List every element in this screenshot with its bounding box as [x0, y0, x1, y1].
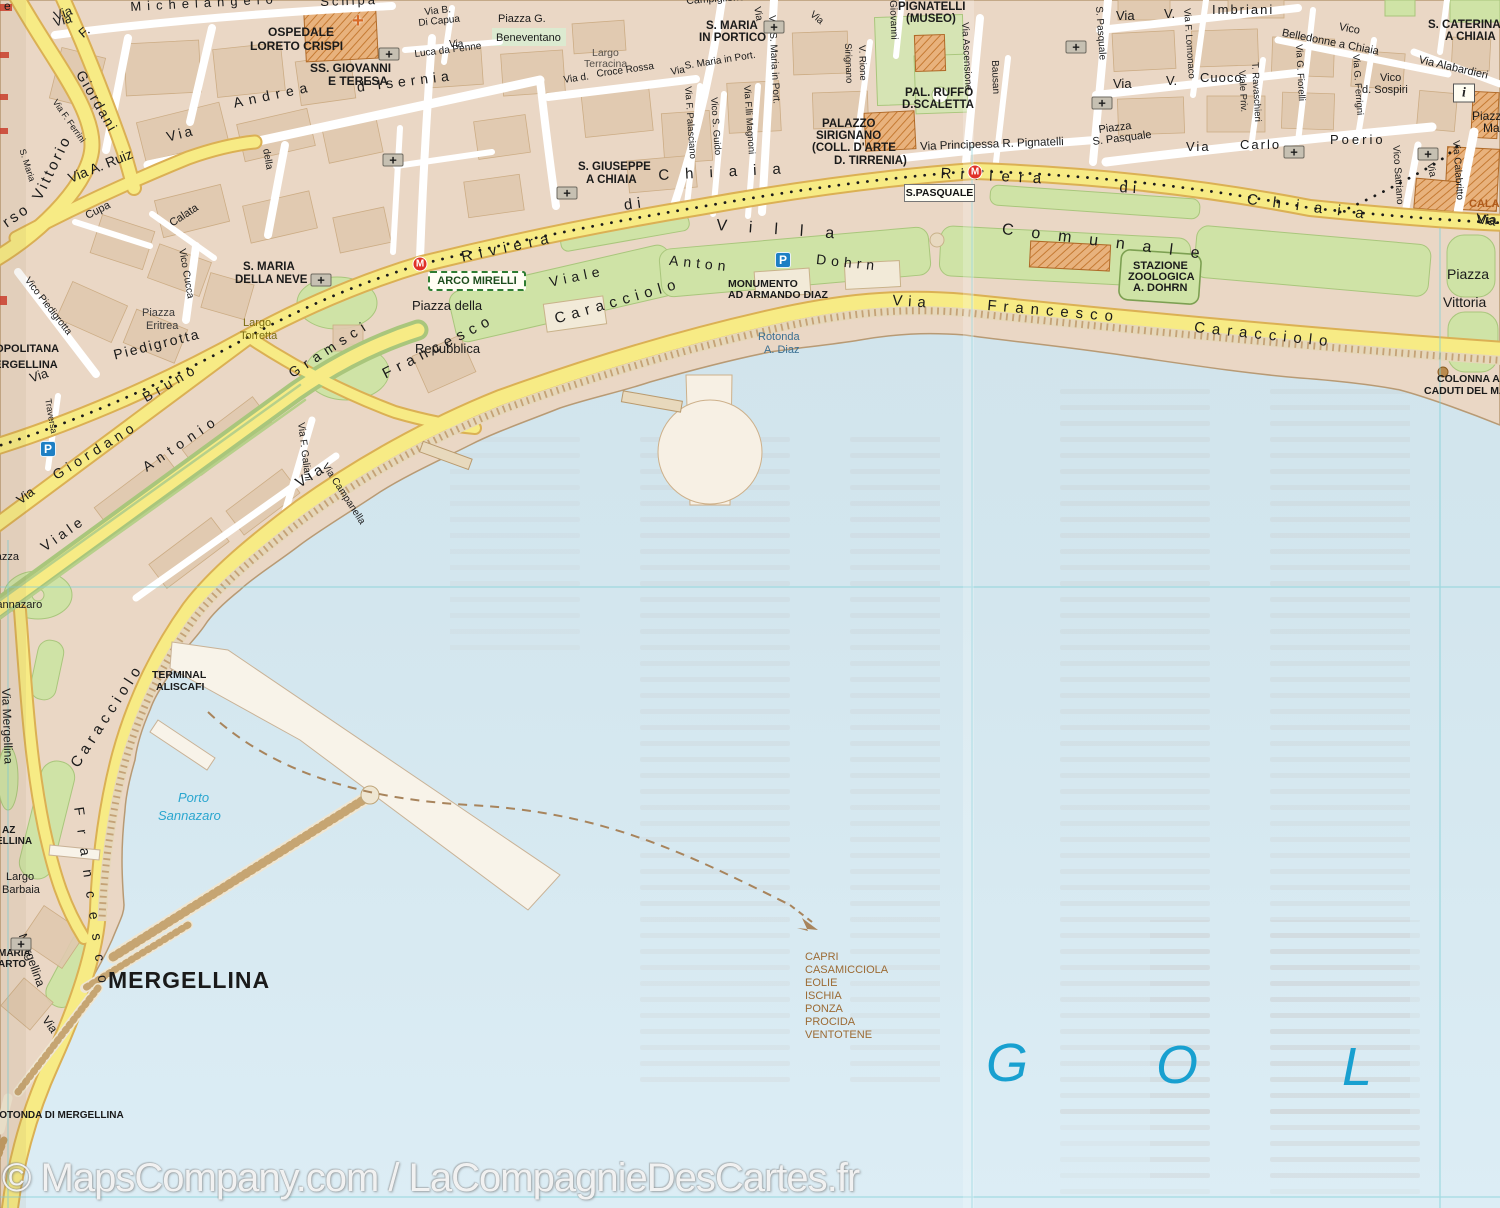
map-photo: eViaMichelangeloSchipaOSPEDALELORETO CRI…: [0, 0, 1500, 1208]
rotonda-diaz: [658, 400, 762, 504]
map-graphics: [0, 0, 1500, 1208]
left-edge-shade: [0, 0, 26, 1208]
map-fold: [963, 0, 974, 1208]
pal-ruffo-court: [932, 87, 948, 103]
